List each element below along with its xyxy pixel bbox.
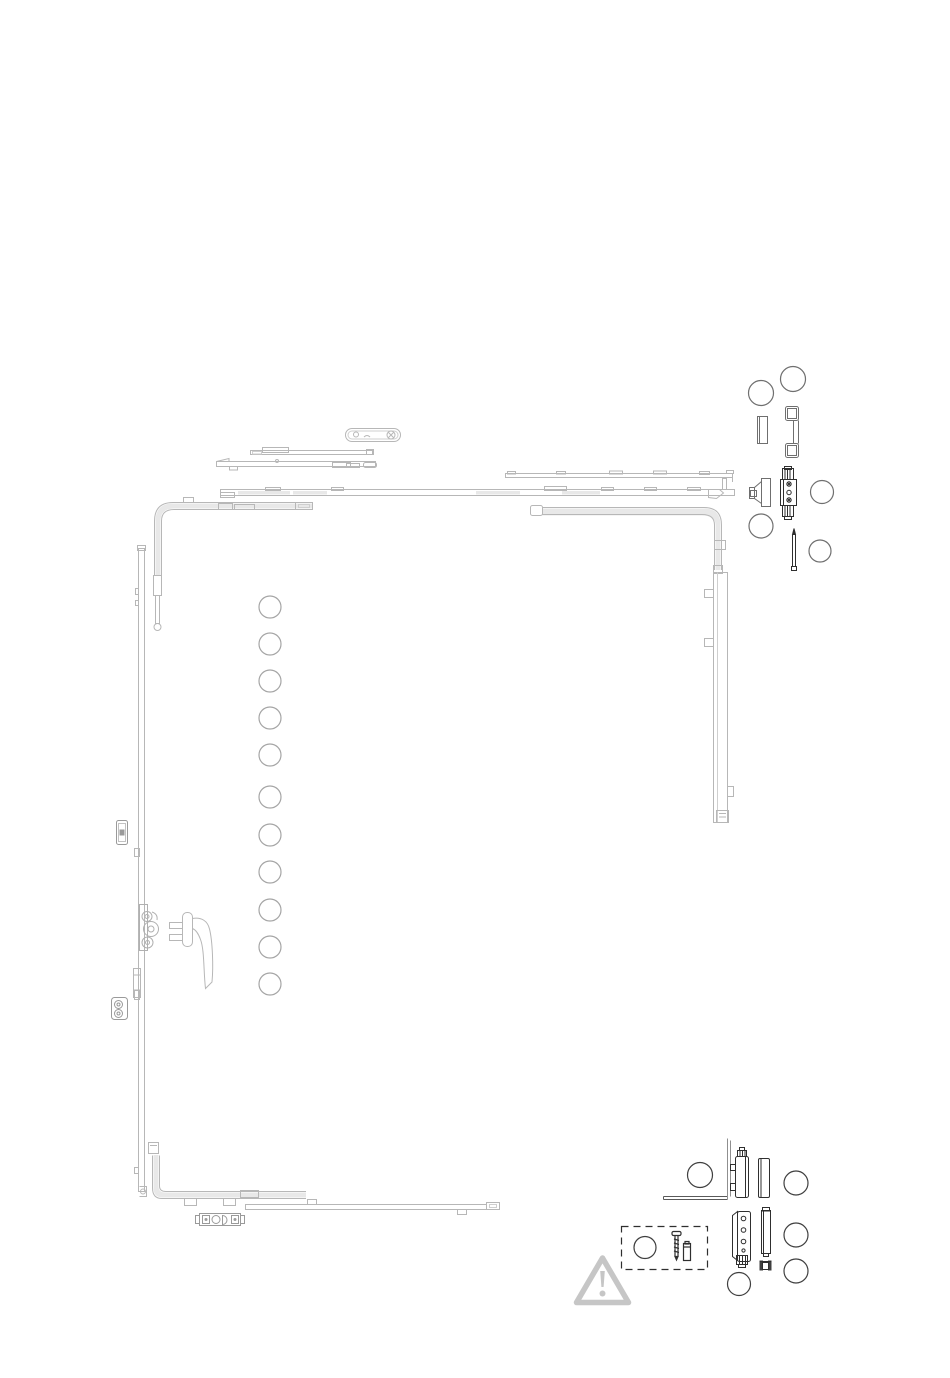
callout-column-left [259, 596, 281, 995]
tilt-lock-rail-part [506, 471, 734, 483]
callout-balloon [784, 1171, 808, 1195]
corner-hinge-part [733, 1212, 751, 1268]
callout-balloon [259, 707, 281, 729]
window-handle-part [170, 913, 213, 989]
callout-balloon [259, 786, 281, 808]
corner-drive-top-right-part [531, 506, 726, 574]
callout-balloon [749, 381, 774, 406]
gearbox-part [140, 905, 159, 951]
wall-plug-icon [684, 1242, 691, 1261]
callout-balloon [259, 861, 281, 883]
callout-balloon [809, 540, 831, 562]
mounting-screw-icon [672, 1232, 681, 1261]
bottom-rail-part [246, 1200, 500, 1215]
callout-balloon [634, 1237, 656, 1259]
striker-plate-bottom-part [196, 1214, 245, 1226]
callout-balloon [728, 1273, 751, 1296]
callout-balloon [259, 824, 281, 846]
stay-arm-bearing-part [664, 1139, 731, 1200]
callout-balloon [259, 899, 281, 921]
corner-hinge-cover-cap-part [762, 1208, 771, 1257]
espagnolette-left-rail-part [134, 546, 147, 1197]
callout-accessory-box [634, 1237, 656, 1259]
callout-balloon [781, 367, 806, 392]
callout-balloon [259, 596, 281, 618]
callout-balloon [259, 633, 281, 655]
striker-plate-with-screws-part [781, 467, 797, 520]
callout-balloon [259, 670, 281, 692]
warning-triangle-icon [577, 1258, 629, 1303]
diagram-page [0, 0, 950, 1378]
connecting-pin-part [792, 529, 797, 571]
stay-arm-upper-part [251, 448, 374, 455]
hinge-body-part [731, 1148, 749, 1198]
striker-keeper-upper-part [117, 821, 128, 845]
callout-balloon [811, 481, 834, 504]
callout-balloon [688, 1163, 713, 1188]
locking-plate-part [346, 429, 401, 442]
callout-balloon [259, 744, 281, 766]
callout-group-top-right [749, 367, 834, 563]
u-bracket-part [786, 407, 799, 458]
stay-arm-lower-part [217, 459, 377, 471]
espagnolette-top-rail-part [221, 479, 735, 499]
corner-drive-top-left-part [154, 498, 313, 631]
tilt-wedge-part [750, 479, 771, 507]
cover-cap-small-part [758, 417, 768, 444]
callout-balloon [784, 1223, 808, 1247]
callout-balloon [259, 936, 281, 958]
hinge-cover-cap-part [759, 1159, 770, 1198]
callout-balloon [749, 514, 773, 538]
hardware-diagram [0, 0, 950, 1378]
callout-balloon [784, 1259, 808, 1283]
stay-guide-rail-right-part [705, 573, 734, 823]
bushing-part [760, 1261, 772, 1271]
callout-balloon [259, 973, 281, 995]
corner-drive-bottom-left-part [149, 1143, 307, 1206]
callout-group-bottom-right [688, 1163, 809, 1296]
striker-keeper-lower-part [112, 998, 128, 1020]
